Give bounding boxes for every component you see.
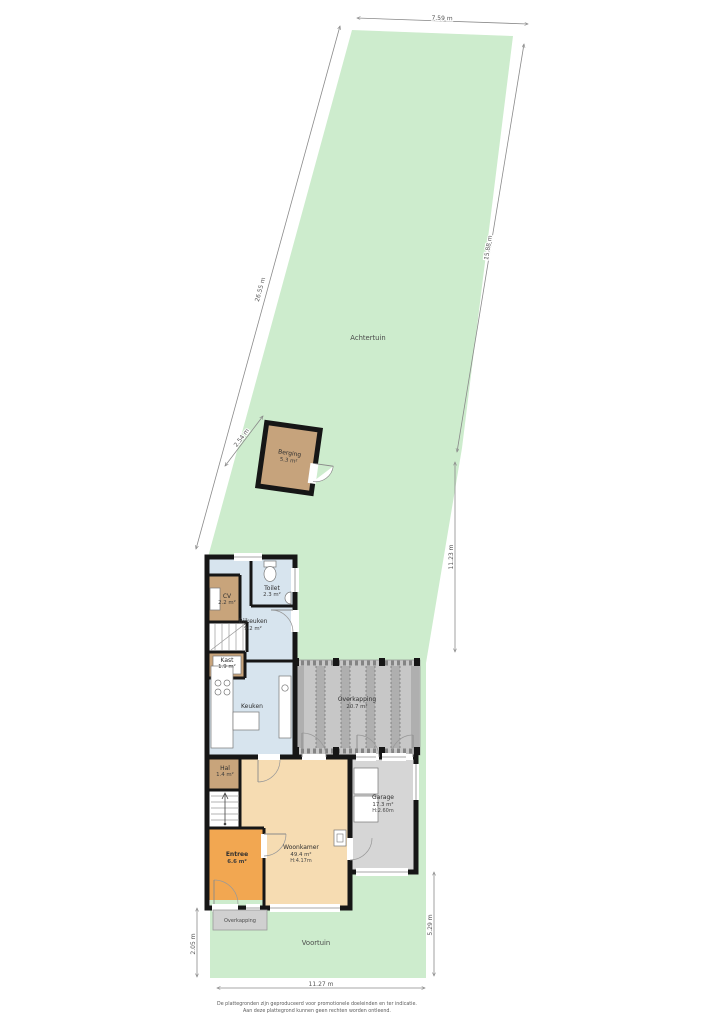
cv-boiler — [210, 588, 220, 610]
room-overkapping-front: Overkapping — [213, 910, 267, 930]
kitchen-counter-right — [279, 676, 291, 738]
room-overkapping-rear: Overkapping 20.7 m² — [293, 658, 420, 755]
garage-shelf-1 — [354, 768, 378, 794]
woonkamer-area: 49.4 m² — [290, 851, 311, 858]
footer-disclaimer-line2: Aan deze plattegrond kunnen geen rechten… — [243, 1008, 391, 1014]
toilet-area: 2.3 m² — [263, 591, 281, 598]
radiator — [334, 830, 346, 846]
front-porch-label: Overkapping — [224, 918, 256, 924]
toilet-label: Toilet — [263, 585, 280, 592]
toilet-tank — [264, 561, 276, 567]
entree-label: Entree — [226, 851, 248, 858]
front-garden-label: Voortuin — [302, 939, 330, 947]
floorplan-drawing: Achtertuin Voortuin Berging 5.3 m² — [0, 0, 724, 1024]
dim-top: 7.59 m — [431, 15, 452, 23]
kitchen-counter-left — [211, 666, 233, 748]
toilet-bowl — [264, 567, 276, 582]
footer-disclaimer-line1: De plattegronden zijn geproduceerd voor … — [217, 1001, 417, 1007]
garage-height: H:2.60m — [372, 808, 394, 814]
footer-disclaimer: De plattegronden zijn geproduceerd voor … — [217, 1001, 417, 1014]
garage-label: Garage — [372, 794, 394, 801]
hal-label: Hal — [220, 765, 230, 772]
dim-front-right: 5.29 m — [427, 914, 434, 935]
floorplan-page: Achtertuin Voortuin Berging 5.3 m² — [0, 0, 724, 1024]
kast-area: 1.9 m² — [218, 663, 236, 670]
woonkamer-height: H:4.17m — [290, 858, 312, 864]
entree-area: 6.6 m² — [227, 858, 247, 865]
terrace-label: Overkapping — [338, 696, 377, 703]
terrace-area: 20.7 m² — [346, 703, 367, 710]
keuken-label: Keuken — [241, 703, 263, 710]
cv-label: CV — [223, 593, 232, 600]
dim-right-mid: 11.23 m — [448, 544, 455, 569]
cv-area: 2.2 m² — [218, 599, 236, 606]
dim-bottom: 11.27 m — [309, 981, 334, 988]
kast-label: Kast — [221, 657, 235, 664]
bijkeuken-label: Bijkeuken — [239, 618, 268, 625]
garage-area: 17.3 m² — [372, 801, 393, 808]
bijkeuken-area: 9.2 m² — [244, 625, 262, 632]
hal-area: 1.4 m² — [216, 771, 234, 778]
back-garden-label: Achtertuin — [350, 334, 385, 342]
kitchen-counter-island — [233, 712, 259, 730]
dim-front-left: 2.05 m — [190, 933, 197, 954]
woonkamer-label: Woonkamer — [283, 844, 319, 851]
